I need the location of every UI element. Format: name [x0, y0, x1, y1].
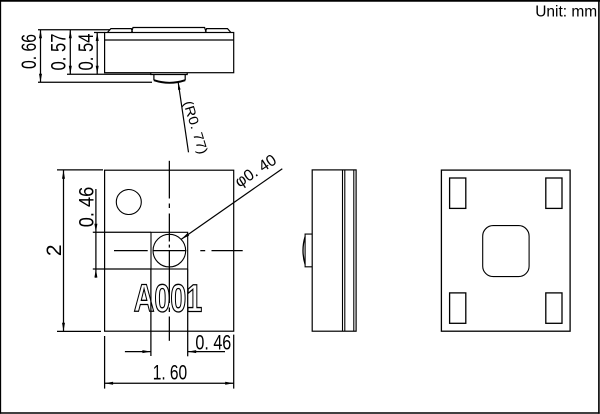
svg-text:0. 54: 0. 54	[75, 33, 98, 70]
svg-text:1. 60: 1. 60	[153, 362, 188, 385]
svg-text:0. 46: 0. 46	[76, 187, 99, 228]
svg-text:0. 66: 0. 66	[18, 34, 41, 69]
svg-text:2: 2	[43, 244, 66, 256]
svg-text:Unit: mm: Unit: mm	[535, 3, 597, 20]
svg-text:0. 46: 0. 46	[195, 331, 231, 354]
svg-text:φ0. 40: φ0. 40	[232, 152, 280, 192]
svg-text:0. 57: 0. 57	[47, 34, 70, 71]
svg-text:A001: A001	[134, 277, 202, 320]
